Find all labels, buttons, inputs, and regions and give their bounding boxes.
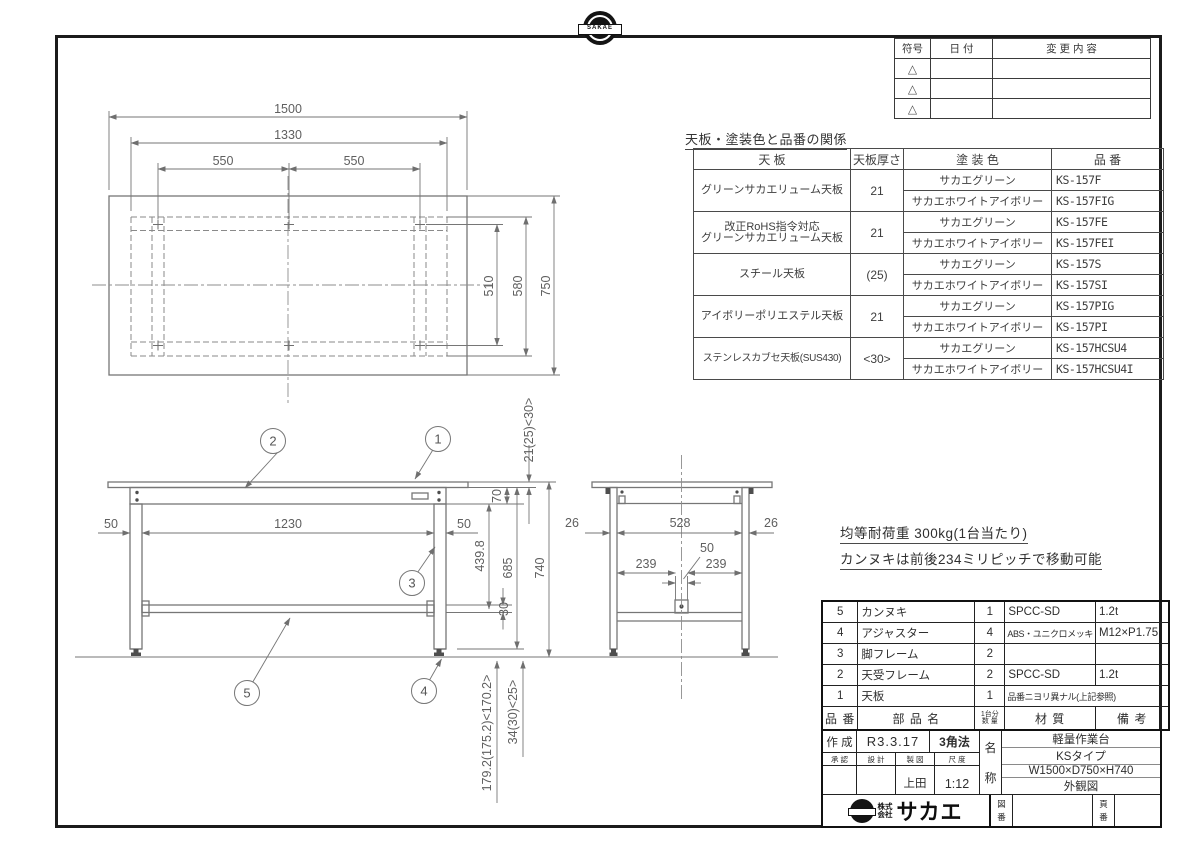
dim-30: 30 [497,602,511,616]
bom-part-no: 3 [822,644,858,665]
finish-color: サカエグリーン [904,338,1052,359]
revision-symbol: △ [895,99,931,119]
dim-550-left: 550 [213,154,234,168]
bom-part-no: 4 [822,623,858,644]
dim-26-left: 26 [565,516,579,530]
finish-top-name: アイボリーポリエステル天板 [694,296,851,338]
draft-label: 製 図 [896,753,935,766]
bom-remarks: M12×P1.75 [1095,623,1169,644]
title-block: 作 成 R3.3.17 3角法 承 認 設 計 製 図 尺 度 上田 1:12 … [821,729,1162,828]
balloon-5: 5 [243,686,250,701]
balloon-4: 4 [420,684,427,699]
approved-label: 承 認 [823,753,857,766]
company-logo-cell: 株式会社 サカエ [823,795,991,826]
dim-50-kannuki: 50 [700,541,714,555]
created-label: 作 成 [823,731,857,753]
finish-col-top: 天 板 [694,149,851,170]
finish-thickness: 21 [851,212,904,254]
balloon-leaders [245,451,442,683]
bom-part-no: 1 [822,686,858,707]
front-right-leg [434,504,446,649]
finish-thickness: <30> [851,338,904,380]
finish-color: サカエグリーン [904,170,1052,191]
top-sakae-logo: SAKAE [583,11,617,45]
finish-part-number: KS-157SI [1052,275,1164,296]
dim-50-left: 50 [104,517,118,531]
side-right-leg [742,488,749,650]
finish-color: サカエホワイトアイボリー [904,275,1052,296]
hidden-lines [131,217,447,356]
note-kannuki-pitch: カンヌキは前後234ミリピッチで移動可能 [840,548,1102,570]
finish-color: サカエグリーン [904,296,1052,317]
dim-1230: 1230 [274,517,302,531]
dim-580: 580 [511,276,525,297]
dim-239-left: 239 [636,557,657,571]
dim-70: 70 [490,489,504,503]
scale-value: 1:12 [935,766,980,795]
finish-top-name: グリーンサカエリューム天板 [694,170,851,212]
bom-material [1005,644,1096,665]
page-number-value [1115,795,1160,826]
revision-col-change: 変 更 内 容 [993,39,1151,59]
front-kannuki-bar [142,605,434,613]
dim-510: 510 [482,276,496,297]
bom-table: 5 カンヌキ 1 SPCC-SD 1.2t 4 アジャスター 4 ABS・ユニク… [821,600,1170,731]
dim-50-right: 50 [457,517,471,531]
bom-material: 品番ニヨリ異ナル(上記参照) [1005,686,1170,707]
product-name-line3: W1500×D750×H740 [1002,764,1160,777]
dim-685: 685 [501,558,515,579]
front-label-plate [412,493,428,499]
finish-part-number: KS-157FEI [1052,233,1164,254]
finish-part-number: KS-157PIG [1052,296,1164,317]
filled-details [131,488,754,656]
revision-change-cell [993,59,1151,79]
sakae-logo: 株式会社 サカエ [850,796,963,826]
bom-part-no: 2 [822,665,858,686]
bom-remarks: 1.2t [1095,601,1169,623]
drawing-number-value [1013,795,1093,826]
front-right-clip [427,601,434,616]
bom-header-qty: 1台分数 量 [975,707,1005,731]
balloon-2: 2 [269,434,276,449]
finish-part-number: KS-157HCSU4I [1052,359,1164,380]
dim-740: 740 [533,558,547,579]
front-left-clip [142,601,149,616]
dim-top-thickness: 21(25)<30> [522,398,536,463]
sakae-logo-mark [850,799,874,823]
bom-qty: 2 [975,665,1005,686]
dim-528: 528 [670,516,691,530]
created-date: R3.3.17 [857,731,930,753]
bom-header-remarks: 備 考 [1095,707,1169,731]
finish-thickness: 21 [851,296,904,338]
dim-1330: 1330 [274,128,302,142]
balloon-1: 1 [434,432,441,447]
finish-top-name: スチール天板 [694,254,851,296]
finish-part-number: KS-157FIG [1052,191,1164,212]
revision-date-cell [931,99,993,119]
finish-thickness: (25) [851,254,904,296]
product-name-line1: 軽量作業台 [1002,731,1160,747]
finish-col-color: 塗 装 色 [904,149,1052,170]
bom-remarks [1095,644,1169,665]
centerlines [92,176,682,700]
revision-col-symbol: 符号 [895,39,931,59]
scale-label: 尺 度 [935,753,980,766]
bom-qty: 4 [975,623,1005,644]
bom-part-name: アジャスター [858,623,975,644]
finish-thickness: 21 [851,170,904,212]
balloon-numbers: 1 2 3 4 5 [243,432,441,701]
name-label: 名称 [980,731,1002,795]
bom-header-material: 材 質 [1005,707,1096,731]
bom-material: ABS・ユニクロメッキ [1005,623,1096,644]
bom-part-name: カンヌキ [858,601,975,623]
finish-col-number: 品 番 [1052,149,1164,170]
dimension-lines [98,111,774,803]
finish-part-number: KS-157HCSU4 [1052,338,1164,359]
revision-symbol: △ [895,59,931,79]
revision-date-cell [931,59,993,79]
finish-table-title: 天板・塗装色と品番の関係 [685,129,847,150]
side-left-bracket [619,496,625,504]
company-prefix: 株式会社 [878,803,893,819]
bom-header-no: 品 番 [822,707,858,731]
finish-part-number: KS-157FE [1052,212,1164,233]
revision-symbol: △ [895,79,931,99]
bom-part-name: 天板 [858,686,975,707]
front-left-leg [130,504,142,649]
note-load-capacity: 均等耐荷重 300kg(1台当たり) [840,522,1028,544]
finish-part-number: KS-157PI [1052,317,1164,338]
load-capacity-notes: 均等耐荷重 300kg(1台当たり) カンヌキは前後234ミリピッチで移動可能 [840,522,1102,574]
drafter-name: 上田 [896,766,935,795]
finish-top-name: ステンレスカブセ天板(SUS430) [694,338,851,380]
finish-table: 天 板 天板厚さ 塗 装 色 品 番 グリーンサカエリューム天板 21 サカエグ… [693,148,1164,380]
bom-material: SPCC-SD [1005,601,1096,623]
finish-col-thickness: 天板厚さ [851,149,904,170]
side-tabletop [592,482,772,488]
top-sakae-logo-banner: SAKAE [578,24,622,35]
side-rails [617,613,742,622]
product-name-area: 軽量作業台 KSタイプ W1500×D750×H740 外観図 [1002,731,1160,795]
front-tabletop [108,482,468,488]
dim-1500: 1500 [274,102,302,116]
product-name-line2: KSタイプ [1002,747,1160,764]
dim-34: 34(30)<25> [506,680,520,745]
bom-material: SPCC-SD [1005,665,1096,686]
dim-750: 750 [539,276,553,297]
finish-color: サカエホワイトアイボリー [904,191,1052,212]
finish-color: サカエホワイトアイボリー [904,317,1052,338]
bom-header-name: 部 品 名 [858,707,975,731]
dim-239-right: 239 [706,557,727,571]
side-right-bracket [734,496,740,504]
dim-550-right: 550 [344,154,365,168]
design-label: 設 計 [857,753,896,766]
revision-date-cell [931,79,993,99]
revision-change-cell [993,79,1151,99]
finish-top-name: 改正RoHS指令対応グリーンサカエリューム天板 [694,212,851,254]
part-balloons [235,427,451,706]
finish-color: サカエグリーン [904,254,1052,275]
dim-179-2: 179.2(175.2)<170.2> [480,675,494,792]
revision-table: 符号 日 付 変 更 内 容 △ △ △ [894,38,1151,119]
front-apron [130,488,446,505]
dim-26-right: 26 [764,516,778,530]
design-value [857,766,896,795]
projection-method: 3角法 [930,731,980,753]
bom-part-name: 脚フレーム [858,644,975,665]
bom-qty: 1 [975,686,1005,707]
finish-part-number: KS-157F [1052,170,1164,191]
dim-439-8: 439.8 [473,540,487,571]
approved-value [823,766,857,795]
revision-col-date: 日 付 [931,39,993,59]
side-left-leg [610,488,617,650]
bom-qty: 1 [975,601,1005,623]
finish-color: サカエホワイトアイボリー [904,233,1052,254]
bom-qty: 2 [975,644,1005,665]
revision-change-cell [993,99,1151,119]
finish-part-number: KS-157S [1052,254,1164,275]
bom-part-no: 5 [822,601,858,623]
balloon-3: 3 [408,576,415,591]
bom-part-name: 天受フレーム [858,665,975,686]
finish-color: サカエホワイトアイボリー [904,359,1052,380]
drawing-number-label: 図番 [991,795,1013,826]
finish-color: サカエグリーン [904,212,1052,233]
page-number-label: 頁番 [1093,795,1115,826]
product-name-line4: 外観図 [1002,777,1160,794]
bom-remarks: 1.2t [1095,665,1169,686]
company-name: サカエ [897,795,963,827]
drawing-sheet: 1 2 3 4 5 1500 1330 550 550 510 580 750 … [0,0,1200,849]
